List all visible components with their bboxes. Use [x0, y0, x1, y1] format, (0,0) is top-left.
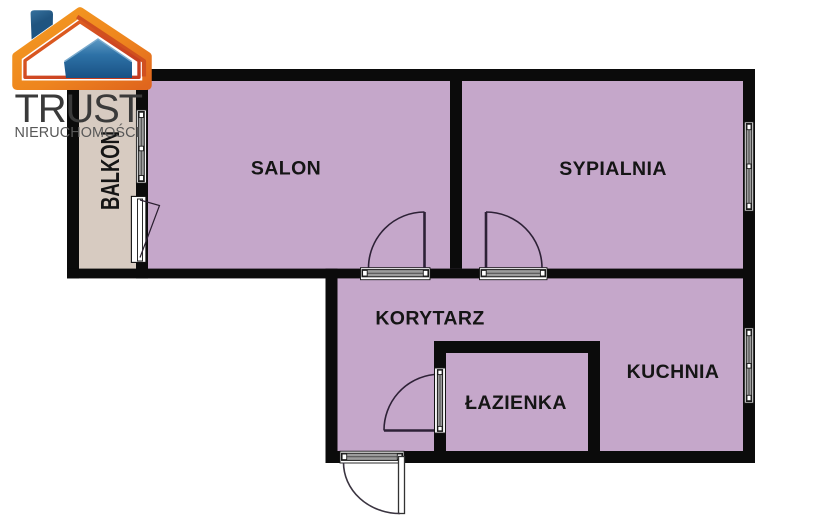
svg-text:SYPIALNIA: SYPIALNIA [559, 158, 667, 180]
svg-text:NIERUCHOMOŚCI: NIERUCHOMOŚCI [15, 123, 140, 141]
svg-text:ŁAZIENKA: ŁAZIENKA [465, 392, 567, 414]
svg-text:SALON: SALON [251, 158, 321, 180]
svg-text:KORYTARZ: KORYTARZ [375, 308, 484, 330]
svg-text:BALKON: BALKON [95, 131, 125, 210]
svg-text:KUCHNIA: KUCHNIA [627, 361, 720, 383]
